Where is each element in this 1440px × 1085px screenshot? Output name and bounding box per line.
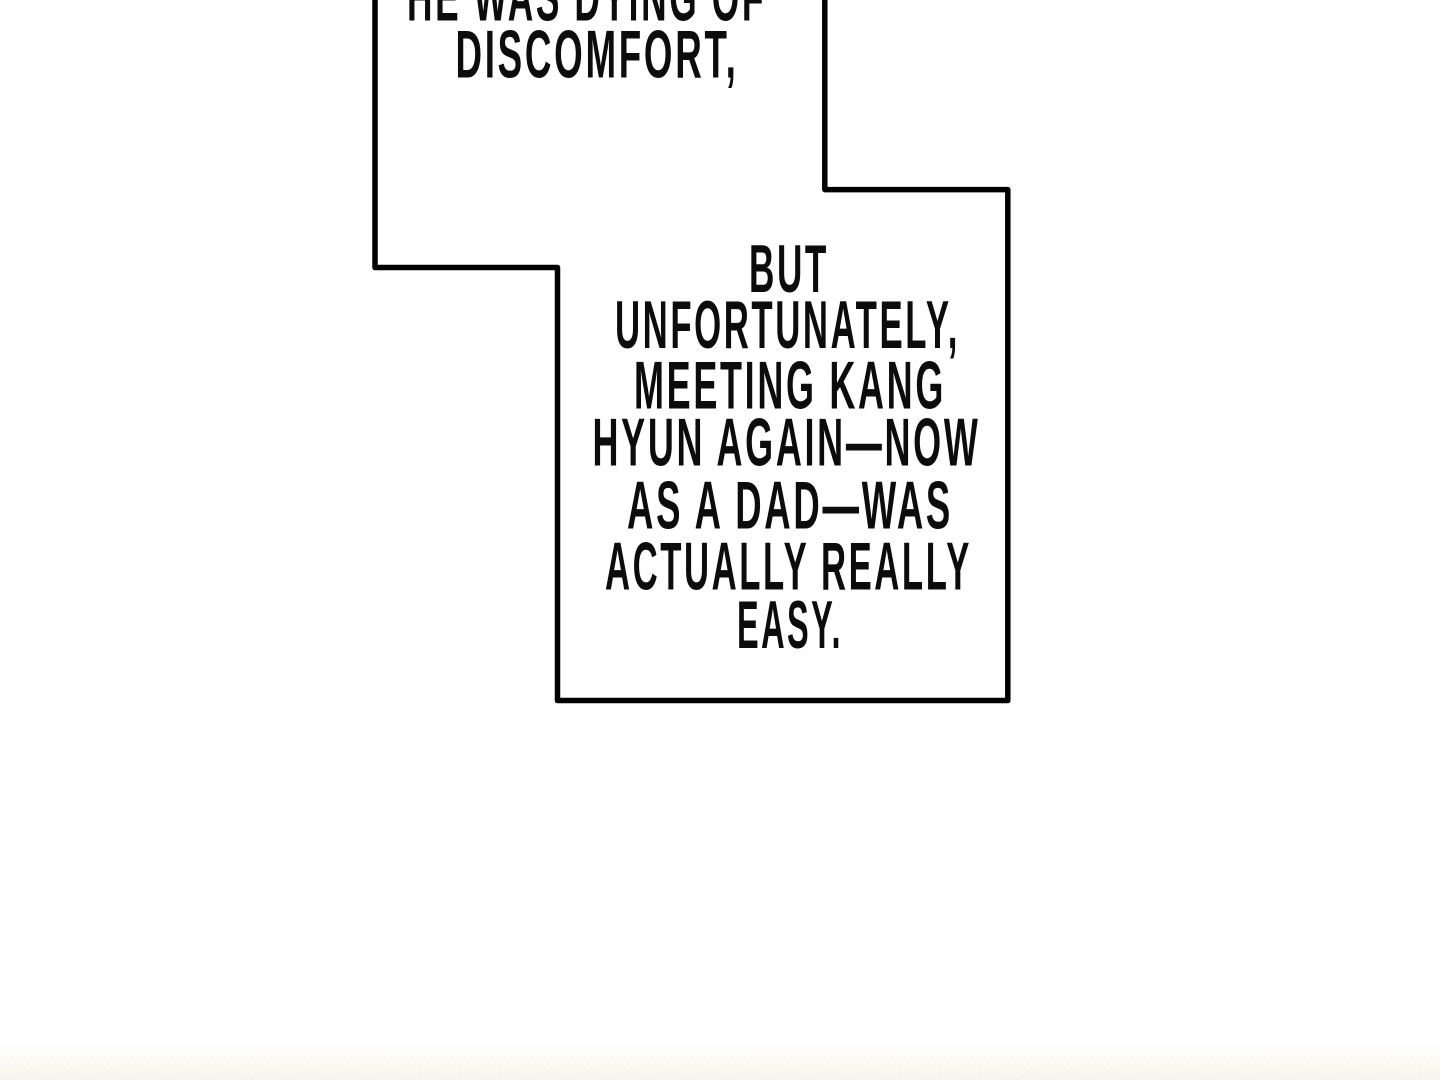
svg-text:EASY.: EASY. xyxy=(737,588,843,663)
svg-text:DISCOMFORT,: DISCOMFORT, xyxy=(456,18,739,93)
